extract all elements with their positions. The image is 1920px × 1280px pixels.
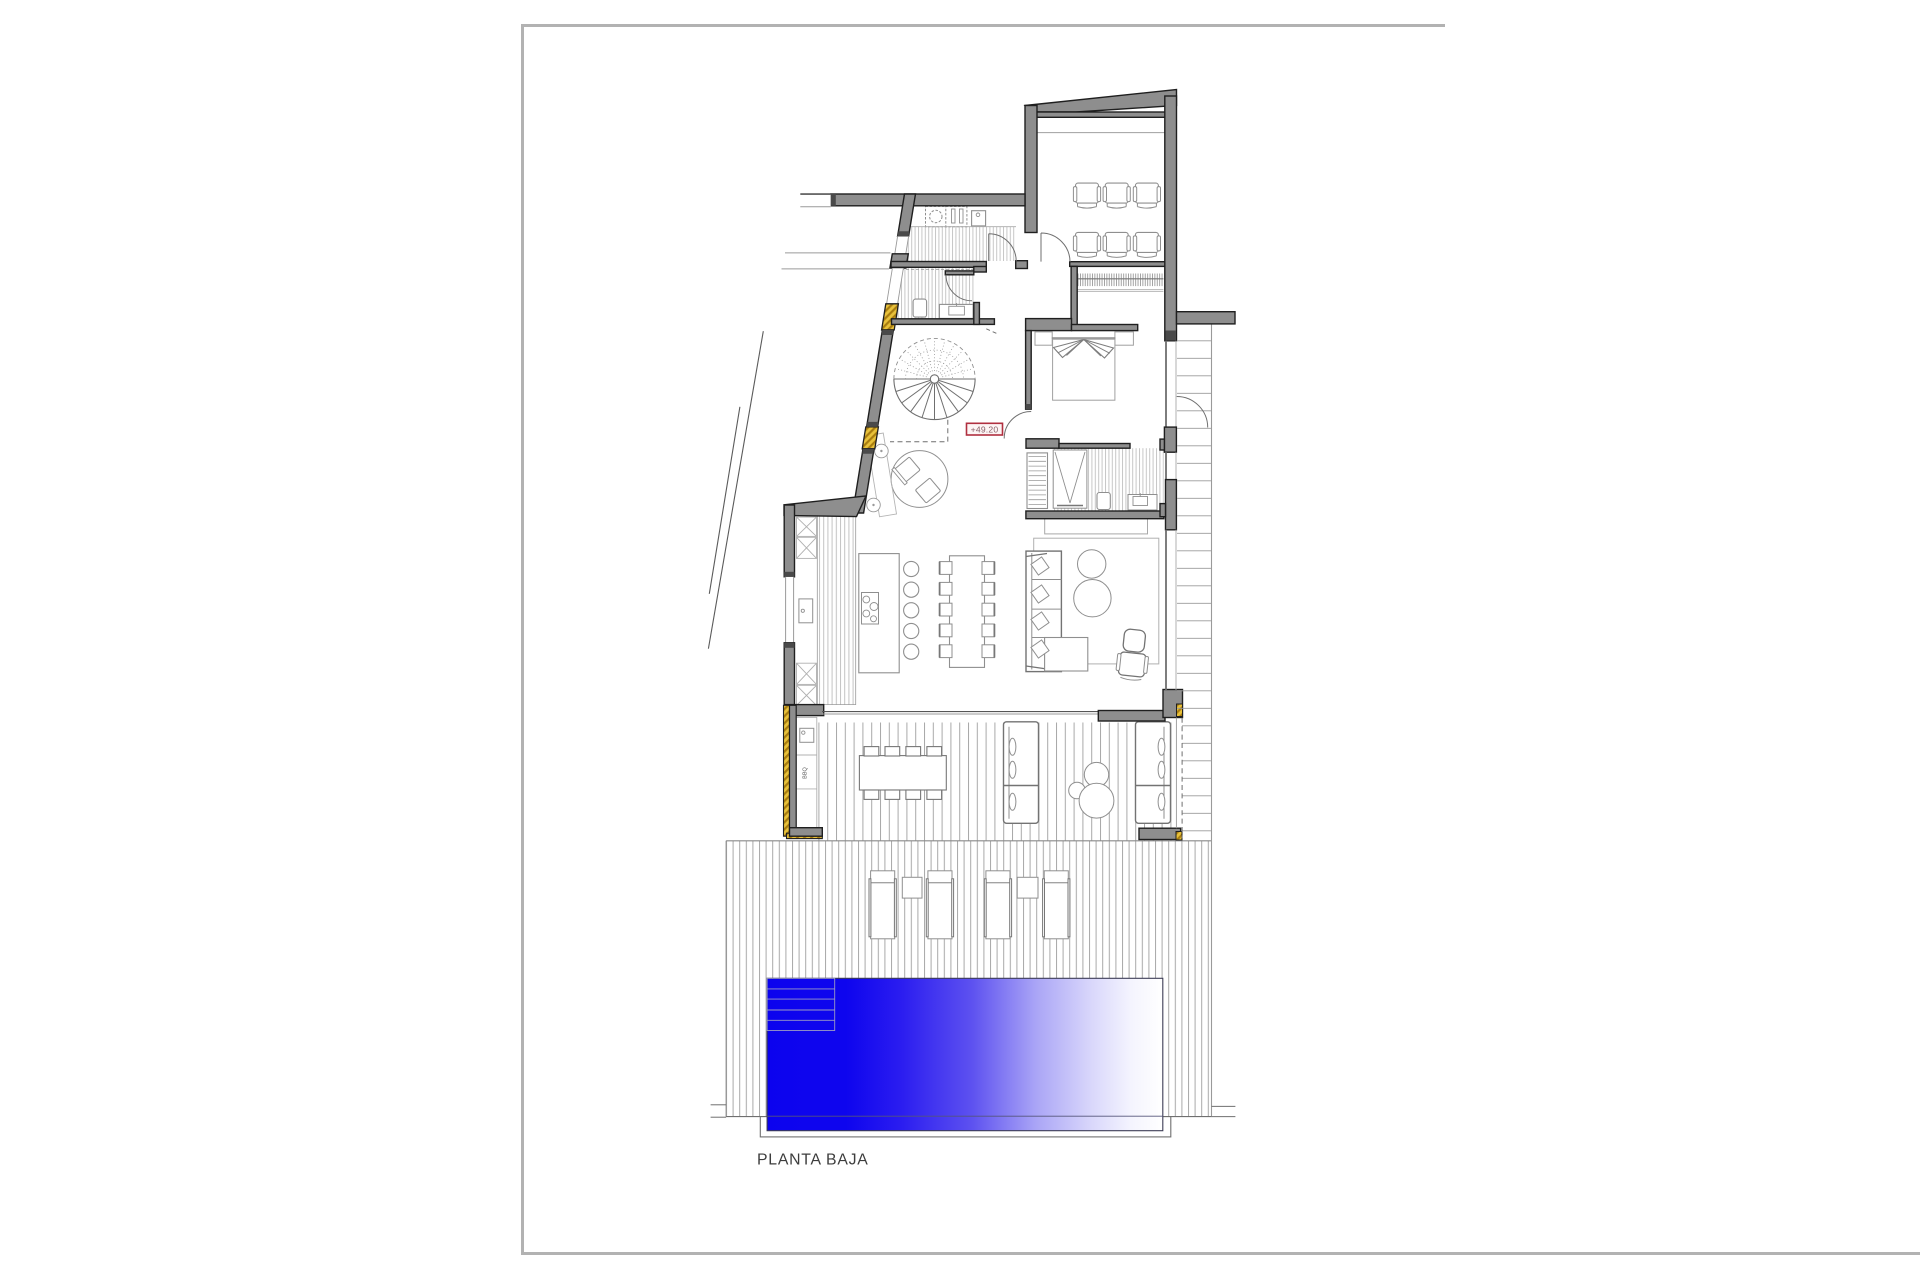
svg-text:BBQ: BBQ: [803, 766, 809, 778]
svg-text:+49.20: +49.20: [971, 424, 999, 434]
svg-text:PLANTA BAJA: PLANTA BAJA: [757, 1151, 869, 1168]
